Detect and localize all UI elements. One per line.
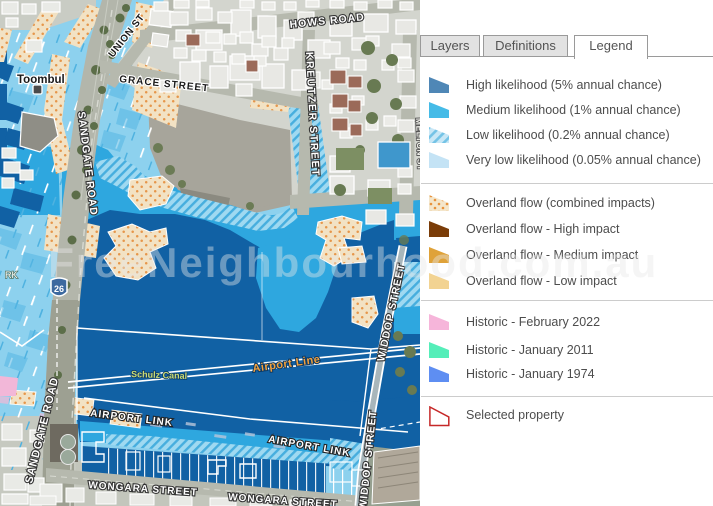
svg-text:Toombul: Toombul (17, 74, 65, 86)
svg-text:Schulz Canal: Schulz Canal (131, 369, 187, 381)
svg-text:26: 26 (54, 284, 64, 294)
svg-text:RK: RK (5, 270, 18, 280)
svg-text:MELTON ST: MELTON ST (414, 118, 426, 171)
